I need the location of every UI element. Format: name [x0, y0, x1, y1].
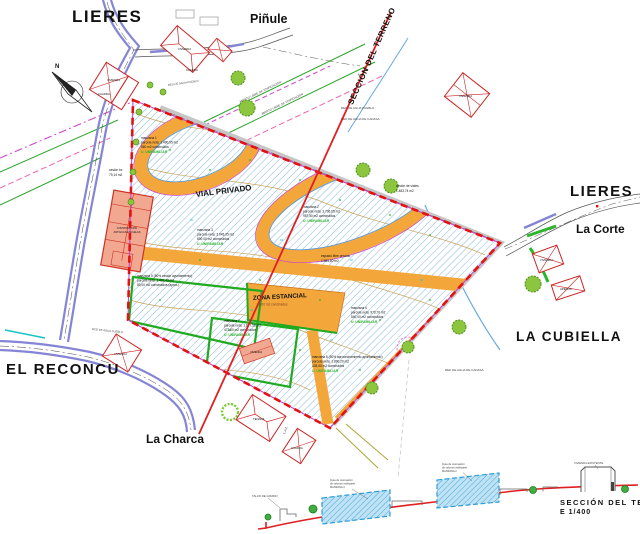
wall-label: TALUD DE CAMINO [252, 494, 278, 498]
place-lieres-right: LIERES [570, 183, 633, 200]
compass-needle-fill [52, 72, 76, 96]
place-la-corte: La Corte [576, 222, 625, 236]
red-agua-pueblo-label: RED DE AGUA PUEBLO [168, 79, 200, 87]
leader-line [268, 498, 280, 508]
magenta-line [0, 102, 132, 158]
manzana-line: 435,50 m2 construidos [312, 364, 345, 368]
site-plan-svg: ÁMBITO LIBRE DE EDIFICACIÓN ÁMBITO LIBRE… [0, 0, 640, 534]
section-line-label: SECCIÓN DEL TERRENO [346, 6, 397, 106]
small-structure [200, 17, 218, 25]
section-volume-1 [322, 490, 390, 524]
terrain-section: TALUD DE CAMINO línea de coronación de v… [252, 461, 640, 529]
red-agua-pueblo-label: RED DE AGUA PUEBLO [92, 327, 124, 334]
manzana-uso: U. UNIFAMILIAR [197, 242, 224, 246]
manzana-line: 50,00 m2 construidos (aprox.) [137, 283, 179, 287]
north-arrow: N [52, 64, 92, 112]
building-label: VIVIENDA [114, 352, 127, 356]
section-scale: E 1/400 [560, 509, 591, 516]
pink-line [0, 138, 110, 188]
tree-icon [402, 341, 414, 353]
tree-icon [356, 163, 370, 177]
place-el-reconcu: EL RECONCU [6, 361, 120, 378]
place-la-cubiella: LA CUBIELLA [516, 329, 622, 344]
place-lieres-top: LIERES [72, 7, 142, 26]
manzana-line: manzana 7 [224, 319, 240, 323]
building-small-top [208, 38, 232, 62]
manzana-uso: U. UNIFAMILIAR [141, 150, 168, 154]
manzana-line: parcela neta: 1.677,56 m2 [224, 324, 261, 328]
espacio-libre-line: 1.985,60 m2 [321, 259, 339, 263]
place-la-charca: La Charca [146, 432, 204, 446]
section-house-label: VIVIENDA EXISTENTE [574, 461, 603, 465]
manzana-uso: U. UNIFAMILIAR [224, 333, 251, 337]
site-plan-canvas: ÁMBITO LIBRE DE EDIFICACIÓN ÁMBITO LIBRE… [0, 0, 640, 534]
manzana-uso: U. UNIFAMILIAR [351, 320, 378, 324]
building-label: CUADRA [98, 92, 110, 96]
volume2-label: MANZANA 2 [442, 469, 457, 473]
tree-icon [231, 71, 245, 85]
road-accent [524, 214, 556, 228]
tree-icon [622, 486, 629, 493]
magenta-line [190, 66, 330, 132]
small-structure [176, 10, 194, 18]
tree-icon [530, 487, 537, 494]
cesion-line: cesión bz [109, 168, 123, 172]
volume1-label: de volumen edificable [330, 481, 356, 485]
road-centerline [0, 346, 191, 430]
bush-icon [128, 199, 134, 205]
manzana-line: parcela neta: 1.492,43 m2 [137, 279, 174, 283]
cesion-line: cesión de viales [396, 184, 419, 188]
tree-icon [366, 382, 378, 394]
cyan-line [5, 330, 45, 338]
building-label: VIVIENDA [178, 47, 191, 51]
section-house [581, 467, 615, 492]
old-school-label: CONSTRUCCIÓN [117, 227, 138, 230]
tree-icon [265, 514, 271, 520]
manzana-line: 957,50 m2 construidos [303, 214, 336, 218]
bush-icon [133, 139, 139, 145]
tree-icon [309, 505, 317, 513]
manzana-line: parcela neta: 1.890,20 m2 [312, 360, 349, 364]
manzana-line: manzana 5 (50% cesión ayuntamiento) [137, 274, 192, 278]
manzana-line: manzana 2 [303, 205, 319, 209]
volume1-label: MANZANA 3 [330, 485, 345, 489]
projection-line [398, 360, 409, 478]
volume2-label: línea de coronación [442, 462, 465, 466]
tree-icon [239, 100, 255, 116]
building-label: VIVIENDA [540, 258, 553, 262]
section-volume-2 [437, 473, 499, 508]
building-label: TENADA [253, 417, 264, 421]
building-label: VIVIENDA [107, 78, 120, 82]
espacio-libre-line: espacio libre privado [321, 254, 350, 258]
cesion-viales-block: cesión de viales 1.483,74 m2 [396, 184, 419, 193]
tree-ring-icon [222, 404, 238, 420]
cesion-bz-block: cesión bz 79,14 m2 [109, 168, 123, 177]
utility-lines-left [0, 102, 132, 205]
manzana-line: 560 m2 construidos [141, 145, 169, 149]
building-vivienda-topleft [89, 62, 138, 109]
building-label: VIVIENDA [459, 94, 472, 98]
section-title: SECCIÓN DEL TERRENO [560, 498, 640, 507]
tree-icon [452, 320, 466, 334]
ambito-libre-label: ÁMBITO LIBRE DE EDIFICACIÓN [260, 91, 304, 116]
building-label: CUADRA [186, 68, 198, 72]
manzana-line: 540,00 m2 construidos [351, 315, 384, 319]
red-agua-cadasa-label: RED DE AGUA DE CADASA [341, 117, 380, 121]
road-edge [0, 341, 195, 430]
bush-icon [130, 169, 136, 175]
bush-icon [147, 82, 153, 88]
building-label: APEROS [560, 287, 572, 291]
manzana-line: parcela neta: 2.045,35 m2 [197, 233, 234, 237]
tree-icon [525, 276, 541, 292]
old-school-label: ANTIGUAS ESCUELAS [114, 231, 141, 234]
cesion-line: 1.483,74 m2 [396, 189, 414, 193]
la2-label: L.A.2 [282, 426, 288, 434]
manzana-line: 473,00 m2 construidos [224, 328, 257, 332]
building-label: CUADRA [291, 446, 303, 450]
section-house-chimney [611, 482, 614, 491]
track-dashed [263, 47, 360, 66]
place-pinule: Piñule [250, 12, 288, 26]
cesion-line: 79,14 m2 [109, 173, 123, 177]
retaining-wall [280, 509, 296, 521]
bush-icon [160, 89, 166, 95]
volume2-label: de volumen edificable [442, 465, 468, 469]
road-point [596, 205, 598, 207]
manzana-line: manzana 1 [141, 136, 157, 140]
vivienda-in-parcel-label: VIVIENDA [250, 350, 262, 354]
manzana-uso: U. UNIFAMILIAR [312, 369, 339, 373]
manzana-line: parcela neta: 973,70 m2 [351, 311, 386, 315]
manzana-uso: U. UNIFAMILIAR [303, 219, 330, 223]
manzana-line: parcela neta: 1.490,95 m2 [141, 141, 178, 145]
red-agua-cadasa-label: RED DE AGUA DE CADASA [445, 368, 484, 372]
olive-lines [336, 424, 388, 468]
manzana-line: manzana 3 [197, 228, 213, 232]
manzana-line: manzana 4 [351, 306, 367, 310]
manzana-line: 690,00 m2 construidos [197, 237, 230, 241]
compass-n: N [55, 64, 59, 70]
manzana-line: manzana 6 (50% aprovechamiento ayuntamie… [312, 355, 383, 359]
manzana-line: parcela neta: 3.736,05 m2 [303, 210, 340, 214]
bush-icon [136, 109, 142, 115]
volume1-label: línea de coronación [330, 478, 353, 482]
zona-estancial-detail: 20,00 m2 construidos [257, 303, 288, 307]
